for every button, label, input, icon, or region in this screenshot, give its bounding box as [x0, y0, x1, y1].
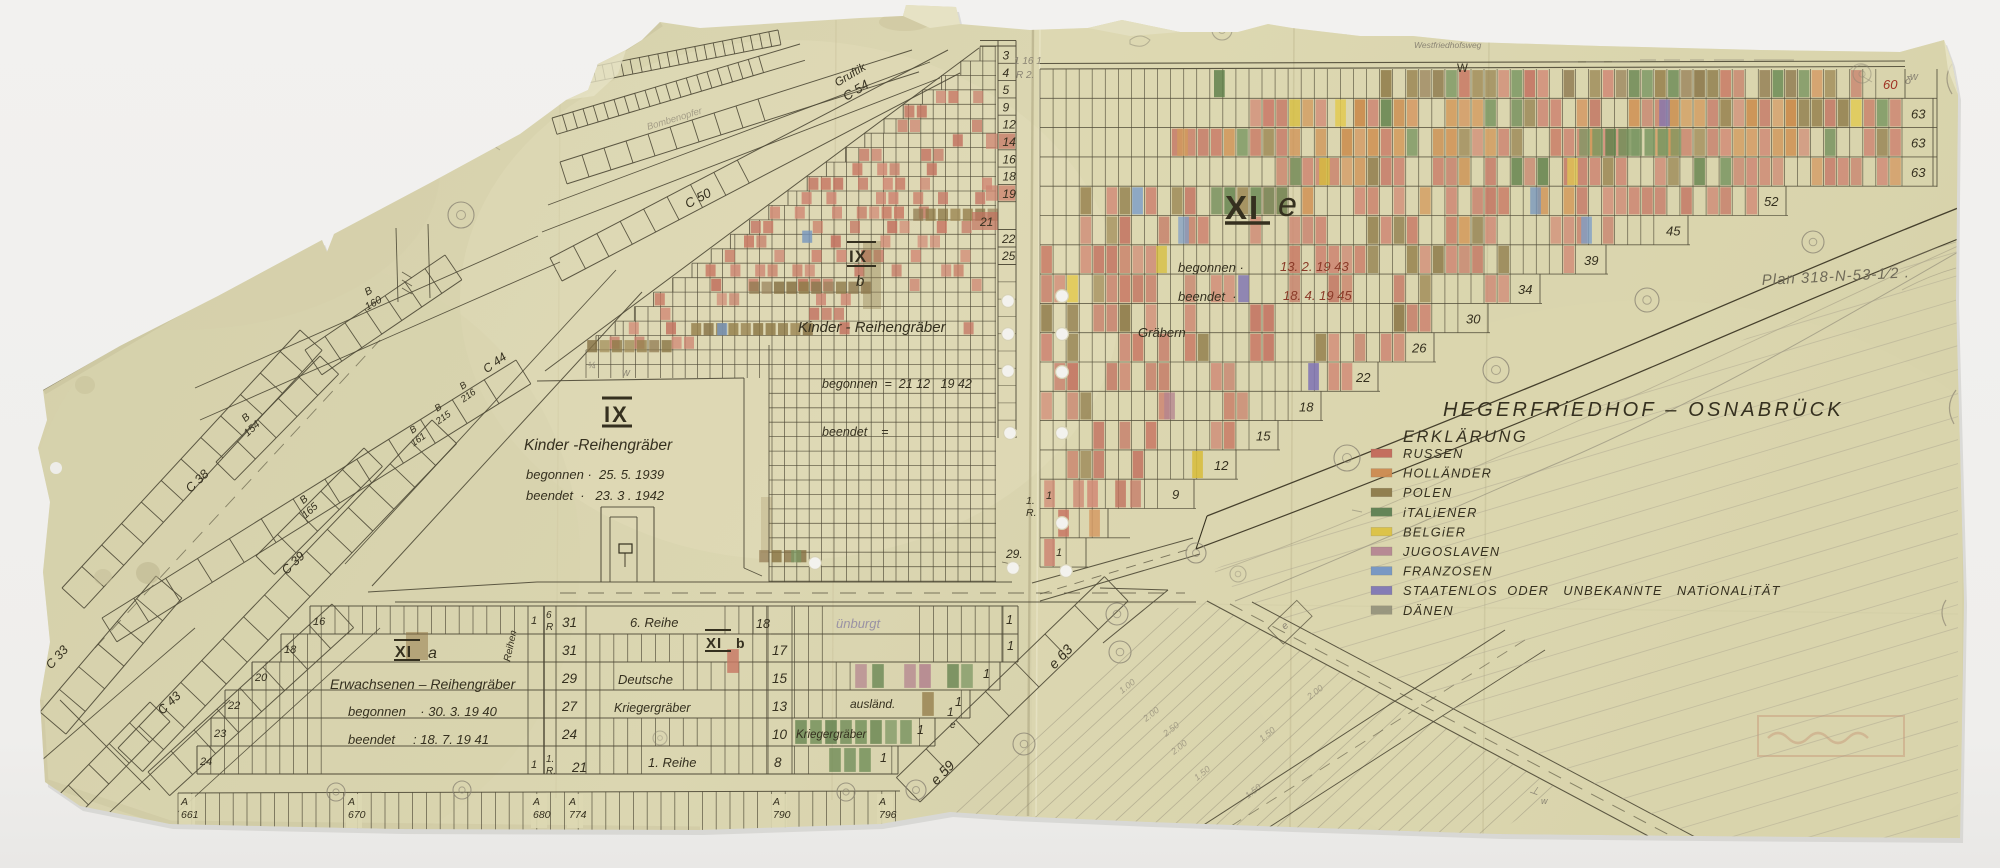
- svg-text:18: 18: [1299, 399, 1314, 414]
- svg-text:22: 22: [1001, 232, 1016, 246]
- svg-text:beendet · 23. 3 . 1942: beendet · 23. 3 . 1942: [526, 488, 665, 503]
- svg-text:1: 1: [531, 615, 537, 627]
- svg-text:begonnen = 21 12 19 42: begonnen = 21 12 19 42: [822, 377, 972, 391]
- svg-text:1: 1: [880, 751, 887, 765]
- svg-text:a: a: [428, 645, 437, 662]
- svg-text:23: 23: [213, 728, 227, 740]
- svg-text:R.: R.: [546, 766, 556, 777]
- svg-text:12: 12: [1003, 118, 1017, 132]
- svg-text:60: 60: [1883, 77, 1898, 92]
- svg-text:ausländ.: ausländ.: [850, 697, 895, 711]
- svg-text:1: 1: [1006, 613, 1013, 627]
- svg-text:¼: ¼: [588, 360, 596, 370]
- svg-text:1: 1: [947, 705, 954, 719]
- svg-text:21: 21: [571, 760, 587, 775]
- svg-text:iTALiENER: iTALiENER: [1403, 505, 1478, 520]
- svg-text:R 2.: R 2.: [1016, 70, 1034, 81]
- svg-text:4: 4: [1003, 66, 1010, 80]
- svg-text:45: 45: [1666, 224, 1681, 239]
- svg-text:ERKLÄRUNG: ERKLÄRUNG: [1403, 428, 1528, 446]
- svg-text:16: 16: [313, 616, 326, 628]
- svg-text:17: 17: [772, 643, 788, 658]
- svg-text:63: 63: [1911, 136, 1926, 151]
- svg-text:29.: 29.: [1005, 547, 1023, 561]
- svg-text:w: w: [1541, 796, 1548, 806]
- svg-text:beendet =: beendet =: [822, 425, 888, 439]
- svg-text:796: 796: [879, 809, 897, 821]
- svg-text:A: A: [347, 796, 355, 808]
- svg-text:A: A: [180, 796, 188, 808]
- svg-text:beendet ·: beendet ·: [1178, 289, 1237, 304]
- svg-text:JUGOSLAVEN: JUGOSLAVEN: [1402, 544, 1500, 559]
- svg-text:5: 5: [1003, 83, 1010, 97]
- svg-text:HEGERFRiEDHOF – OSNABRÜCK: HEGERFRiEDHOF – OSNABRÜCK: [1443, 399, 1844, 421]
- svg-text:STAATENLOS ODER UNBEKANNTE: STAATENLOS ODER UNBEKANNTE NATiONALiTÄT: [1403, 583, 1781, 598]
- svg-text:A: A: [532, 796, 540, 808]
- svg-text:1: 1: [531, 759, 537, 771]
- svg-text:begonnen · 25. 5. 1939: begonnen · 25. 5. 1939: [526, 467, 664, 482]
- svg-text:31: 31: [562, 643, 577, 658]
- svg-text:661: 661: [181, 809, 199, 821]
- svg-text:R.: R.: [1026, 507, 1037, 519]
- svg-text:15: 15: [772, 671, 788, 686]
- svg-text:XI: XI: [395, 644, 412, 661]
- svg-text:13. 2. 19 43: 13. 2. 19 43: [1280, 259, 1349, 274]
- svg-text:XI: XI: [706, 635, 722, 652]
- svg-text:POLEN: POLEN: [1403, 485, 1452, 500]
- svg-text:8: 8: [774, 755, 782, 770]
- svg-text:1: 1: [1046, 490, 1052, 502]
- svg-text:9: 9: [1003, 100, 1010, 114]
- svg-text:b: b: [736, 635, 745, 651]
- svg-text:680: 680: [533, 809, 551, 821]
- svg-text:31: 31: [562, 615, 577, 630]
- svg-text:774: 774: [569, 809, 587, 821]
- svg-text:Kriegergräber: Kriegergräber: [614, 701, 691, 715]
- svg-text:1: 1: [1056, 547, 1062, 559]
- svg-text:19: 19: [1003, 187, 1017, 201]
- svg-text:22: 22: [1355, 370, 1371, 385]
- svg-text:39: 39: [1584, 253, 1598, 268]
- svg-text:1: 1: [1007, 639, 1014, 653]
- svg-text:790: 790: [773, 809, 791, 821]
- svg-text:18: 18: [756, 617, 770, 631]
- svg-text:Erwachsenen – Reihengräber: Erwachsenen – Reihengräber: [330, 676, 517, 692]
- svg-text:A: A: [568, 796, 576, 808]
- svg-text:52: 52: [1764, 194, 1779, 209]
- svg-text:BELGiER: BELGiER: [1403, 524, 1466, 539]
- svg-text:18: 18: [284, 644, 297, 656]
- svg-text:13: 13: [772, 699, 788, 714]
- svg-text:9: 9: [1172, 487, 1179, 502]
- svg-text:6: 6: [546, 610, 552, 621]
- svg-text:15: 15: [1256, 429, 1271, 444]
- svg-text:1: 1: [955, 695, 962, 709]
- svg-text:e: e: [1278, 186, 1297, 224]
- svg-text:begonnen ·: begonnen ·: [1178, 260, 1244, 275]
- svg-text:670: 670: [348, 809, 366, 821]
- svg-text:b: b: [856, 273, 864, 290]
- svg-text:IX: IX: [604, 402, 629, 427]
- svg-text:22: 22: [227, 700, 240, 712]
- svg-text:w: w: [1910, 71, 1919, 83]
- svg-text:6. Reihe: 6. Reihe: [630, 615, 678, 630]
- svg-text:Deutsche: Deutsche: [618, 672, 673, 687]
- svg-text:1.: 1.: [1026, 495, 1035, 507]
- svg-text:begonnen · 30. 3. 19 40: begonnen · 30. 3. 19 40: [348, 704, 498, 719]
- svg-text:14: 14: [1003, 135, 1017, 149]
- svg-text:A: A: [878, 796, 886, 808]
- svg-text:24: 24: [561, 727, 577, 742]
- svg-text:24: 24: [199, 756, 212, 768]
- svg-text:3: 3: [1003, 49, 1010, 63]
- svg-text:1 16 1: 1 16 1: [1014, 56, 1042, 67]
- svg-text:Kriegergräber: Kriegergräber: [796, 729, 867, 741]
- svg-text:18. 4. 19 45: 18. 4. 19 45: [1283, 288, 1352, 303]
- svg-text:1: 1: [917, 723, 924, 737]
- svg-text:20: 20: [254, 672, 268, 684]
- svg-text:R: R: [546, 622, 553, 633]
- svg-text:HOLLÄNDER: HOLLÄNDER: [1403, 466, 1492, 481]
- svg-text:Kinder - Reihengräber: Kinder - Reihengräber: [798, 319, 947, 336]
- svg-text:63: 63: [1911, 106, 1926, 121]
- svg-text:1.: 1.: [546, 754, 554, 765]
- svg-text:beendet : 18. 7. 19 41: beendet : 18. 7. 19 41: [348, 732, 489, 747]
- svg-text:16: 16: [1003, 152, 1017, 166]
- svg-text:Kinder -Reihengräber: Kinder -Reihengräber: [524, 437, 673, 454]
- svg-text:A: A: [772, 796, 780, 808]
- svg-text:10: 10: [772, 727, 788, 742]
- svg-text:w: w: [622, 367, 631, 379]
- svg-text:1. Reihe: 1. Reihe: [648, 755, 696, 770]
- svg-text:21: 21: [979, 215, 993, 229]
- svg-text:ünburgt: ünburgt: [836, 616, 881, 631]
- svg-text:1: 1: [983, 667, 990, 681]
- svg-text:FRANZOSEN: FRANZOSEN: [1403, 564, 1493, 579]
- svg-text:W: W: [1457, 63, 1468, 75]
- svg-text:IX: IX: [849, 247, 867, 266]
- svg-text:XI: XI: [1225, 189, 1260, 226]
- svg-text:RUSSEN: RUSSEN: [1403, 446, 1464, 461]
- svg-text:12: 12: [1214, 458, 1229, 473]
- svg-text:29: 29: [561, 671, 578, 686]
- svg-text:34: 34: [1518, 282, 1532, 297]
- svg-text:Gräbern: Gräbern: [1138, 325, 1186, 340]
- svg-text:26: 26: [1411, 341, 1427, 356]
- svg-text:18: 18: [1003, 170, 1017, 184]
- svg-text:27: 27: [561, 699, 578, 714]
- svg-text:63: 63: [1911, 165, 1926, 180]
- svg-text:25: 25: [1001, 249, 1016, 263]
- svg-text:30: 30: [1466, 311, 1481, 326]
- svg-text:DÄNEN: DÄNEN: [1403, 603, 1454, 618]
